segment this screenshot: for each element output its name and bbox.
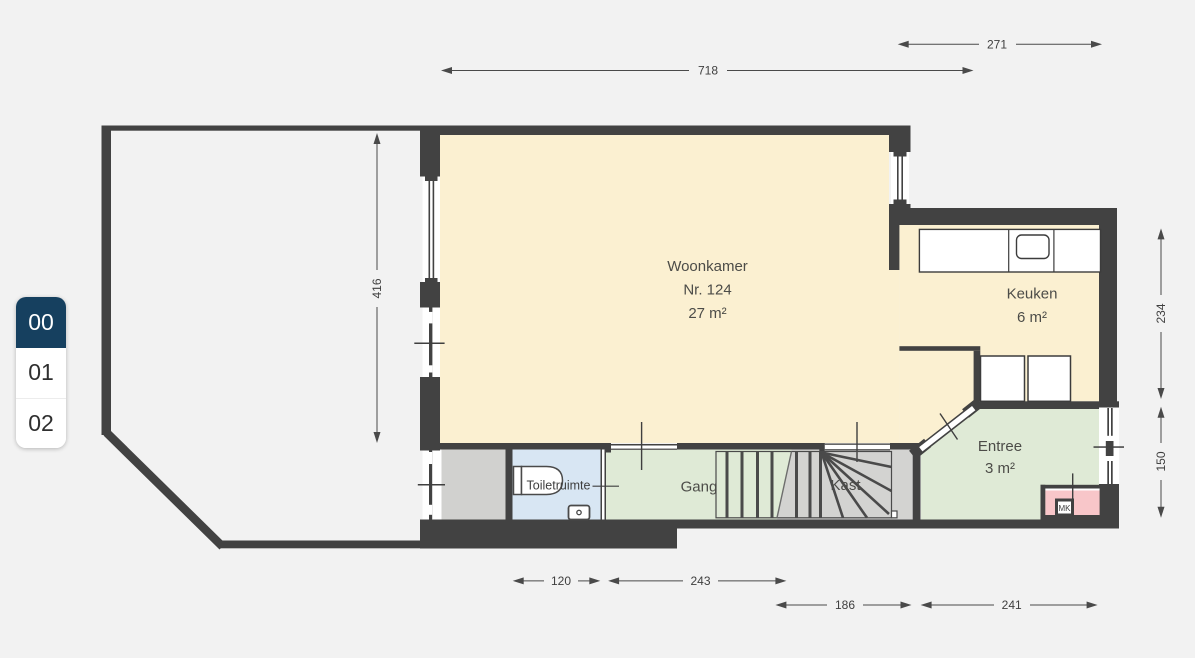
- svg-text:Woonkamer: Woonkamer: [667, 258, 748, 275]
- svg-text:Entree: Entree: [978, 438, 1022, 455]
- svg-text:Gang: Gang: [681, 479, 718, 496]
- svg-text:Keuken: Keuken: [1007, 286, 1058, 303]
- svg-text:234: 234: [1154, 303, 1168, 323]
- svg-text:718: 718: [698, 64, 718, 78]
- svg-text:243: 243: [690, 574, 710, 588]
- svg-text:Kast: Kast: [830, 477, 861, 494]
- svg-text:271: 271: [987, 37, 1007, 51]
- svg-text:27 m²: 27 m²: [688, 305, 726, 322]
- svg-text:Nr. 124: Nr. 124: [683, 282, 731, 299]
- svg-text:3 m²: 3 m²: [985, 460, 1015, 477]
- svg-text:150: 150: [1154, 451, 1168, 471]
- svg-text:6 m²: 6 m²: [1017, 309, 1047, 326]
- svg-text:416: 416: [370, 278, 384, 298]
- svg-text:MK: MK: [1059, 504, 1072, 513]
- svg-text:186: 186: [835, 598, 855, 612]
- svg-text:120: 120: [551, 574, 571, 588]
- svg-text:241: 241: [1002, 598, 1022, 612]
- svg-text:Toiletruimte: Toiletruimte: [527, 479, 591, 493]
